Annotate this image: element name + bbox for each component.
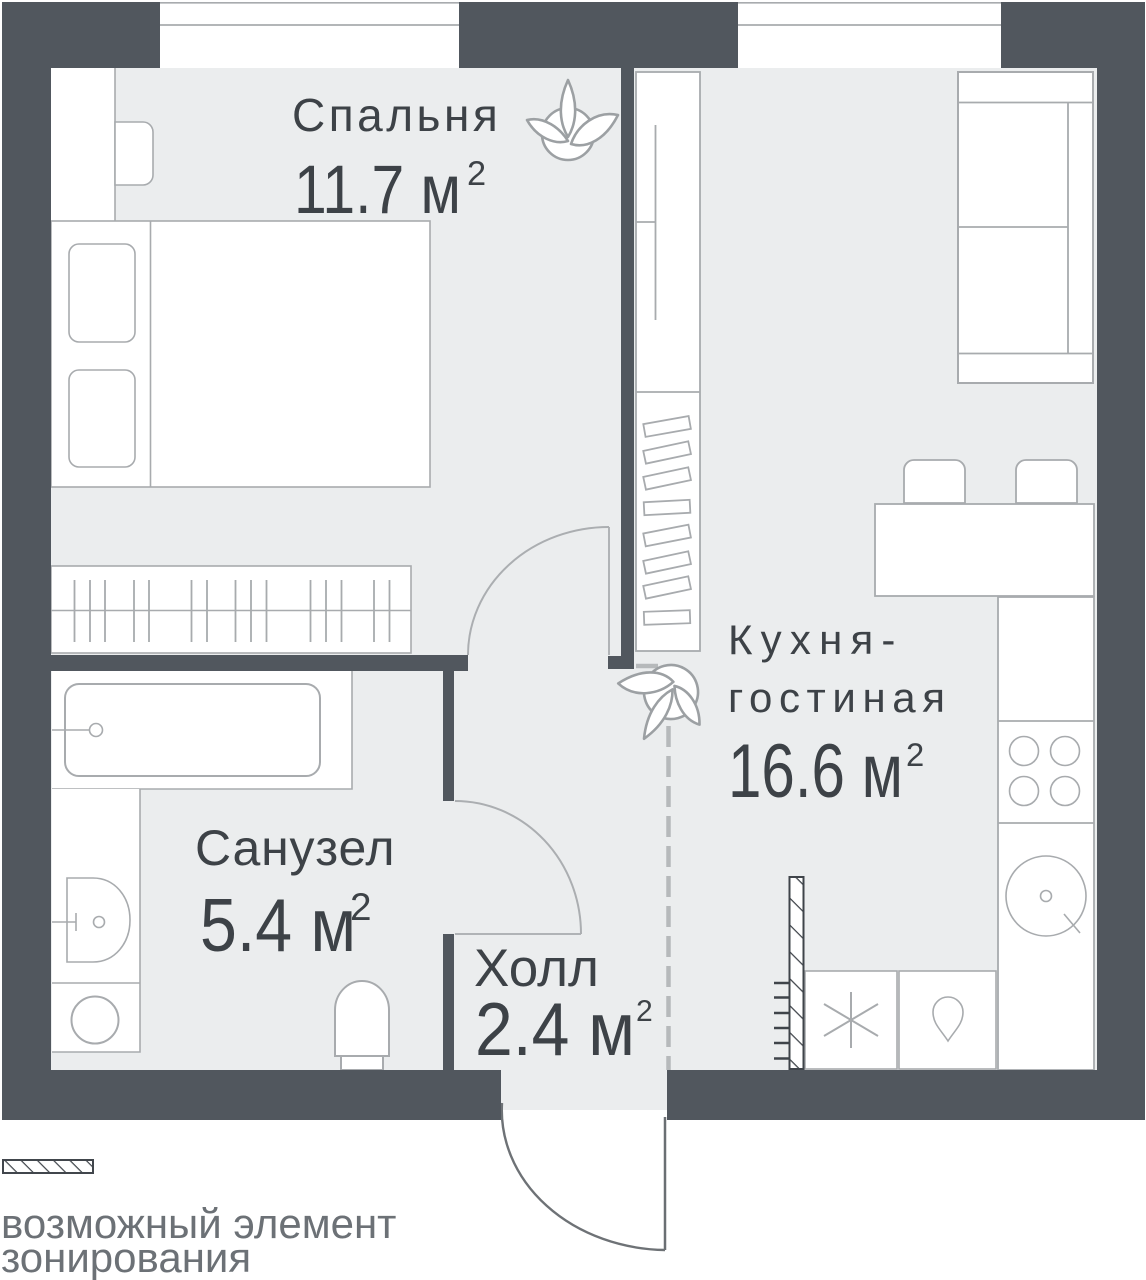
svg-text:Санузел: Санузел	[195, 820, 395, 876]
svg-text:11.7 м: 11.7 м	[294, 151, 461, 228]
svg-text:Кухня-: Кухня-	[728, 616, 904, 663]
svg-text:Спальня: Спальня	[292, 89, 501, 141]
svg-text:гостиная: гостиная	[728, 674, 952, 721]
svg-text:5.4 м: 5.4 м	[200, 883, 356, 967]
svg-text:2.4 м: 2.4 м	[475, 987, 635, 1071]
svg-text:зонирования: зонирования	[1, 1234, 251, 1280]
svg-text:16.6 м: 16.6 м	[728, 729, 903, 814]
